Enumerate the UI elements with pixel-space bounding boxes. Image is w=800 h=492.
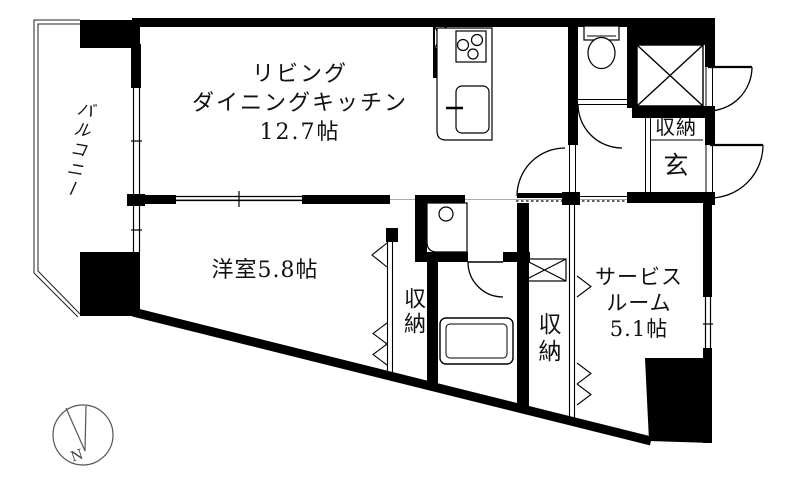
ldk-label-line2: ダイニングキッチン	[170, 89, 430, 118]
label-entrance: 玄	[650, 146, 702, 182]
room-label-western-room: 洋室5.8帖	[145, 252, 385, 284]
bathtub	[440, 318, 513, 364]
pipe-space-x-box	[523, 259, 566, 281]
toilet	[584, 26, 619, 69]
balcony-window-upper	[131, 88, 142, 194]
room-label-ldk: リビング ダイニングキッチン 12.7帖	[170, 60, 430, 147]
label-hall-storage: 収納	[530, 312, 564, 366]
floorplan-page: バルコニー リビング ダイニングキッチン 12.7帖 洋室5.8帖 サービス ル…	[0, 0, 800, 492]
bathroom-door	[468, 262, 503, 297]
shaft-x-box	[637, 45, 703, 106]
label-bedroom-storage: 収納	[396, 287, 428, 337]
label-entrance-storage: 収納	[648, 111, 704, 140]
washbasin	[427, 203, 467, 252]
room-label-service-room: サービス ルーム 5.1帖	[572, 264, 706, 342]
toilet-door	[578, 100, 627, 149]
trunk-door	[706, 67, 752, 111]
ldk-label-line1: リビング	[170, 60, 430, 89]
ldk-label-line3: 12.7帖	[170, 118, 430, 147]
service-room-label-line2: ルーム	[572, 290, 706, 316]
balcony-window-lower	[131, 205, 142, 252]
service-room-label-line1: サービス	[572, 264, 706, 290]
kitchen-counter	[437, 28, 492, 140]
service-room-label-line3: 5.1帖	[572, 316, 706, 342]
